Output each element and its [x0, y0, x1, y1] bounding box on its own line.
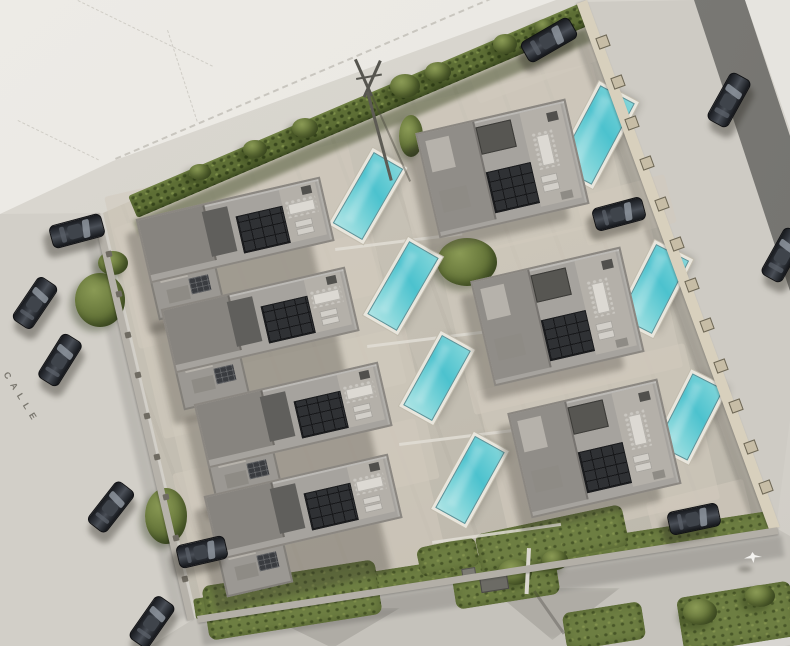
- dining-table: [628, 413, 648, 446]
- dining-set: [283, 194, 318, 219]
- solar-panels: [261, 296, 316, 344]
- skylight: [475, 119, 516, 154]
- dining-set: [585, 276, 615, 318]
- bird-shadow: [738, 566, 752, 572]
- car-roof: [67, 223, 84, 240]
- wall-post: [172, 534, 179, 541]
- dining-table: [591, 281, 611, 314]
- car-roof: [684, 511, 700, 528]
- windshield: [699, 507, 707, 527]
- bush: [390, 74, 420, 98]
- rear-window: [58, 227, 67, 244]
- hvac-unit: [546, 111, 559, 122]
- rear-window: [601, 209, 609, 226]
- rooftop-box: [191, 375, 216, 394]
- rear-window: [676, 514, 684, 531]
- bush: [493, 34, 517, 54]
- hvac-unit: [601, 259, 614, 270]
- bush: [683, 599, 717, 625]
- solar-panels: [188, 274, 211, 294]
- dining-set: [351, 471, 386, 496]
- windshield: [207, 540, 215, 560]
- wall-post: [153, 453, 160, 460]
- rooftop-box: [234, 562, 259, 581]
- hvac-unit: [638, 391, 651, 402]
- bush: [425, 62, 451, 82]
- windshield: [82, 218, 91, 238]
- solar-panels: [256, 551, 279, 571]
- windshield: [624, 202, 633, 222]
- hvac-unit: [301, 185, 313, 195]
- dining-table: [287, 199, 316, 216]
- bush: [189, 164, 211, 180]
- solar-panels: [304, 483, 359, 531]
- hvac-unit: [326, 275, 338, 285]
- dining-table: [345, 384, 374, 401]
- rear-window: [185, 547, 193, 564]
- solar-panels: [294, 391, 349, 439]
- bush: [745, 585, 775, 607]
- car-roof: [192, 544, 208, 561]
- solar-panels: [213, 364, 236, 384]
- dining-table: [312, 289, 341, 306]
- scene: CALLE: [0, 0, 790, 646]
- car-roof: [609, 206, 626, 223]
- dining-table: [355, 476, 384, 493]
- dining-set: [530, 128, 560, 170]
- skylight: [567, 399, 608, 434]
- dining-set: [341, 379, 376, 404]
- dining-table: [536, 133, 556, 166]
- skylight: [530, 267, 571, 302]
- solar-panels: [246, 459, 269, 479]
- dining-set: [622, 408, 652, 450]
- rooftop-box: [560, 189, 573, 199]
- solar-panels: [236, 206, 291, 254]
- bush: [292, 118, 318, 138]
- rooftop-box: [652, 469, 665, 479]
- rooftop-box: [166, 285, 191, 304]
- hvac-unit: [369, 462, 381, 472]
- rooftop-box: [615, 337, 628, 347]
- bush: [243, 140, 267, 158]
- dining-set: [308, 284, 343, 309]
- hvac-unit: [359, 370, 371, 380]
